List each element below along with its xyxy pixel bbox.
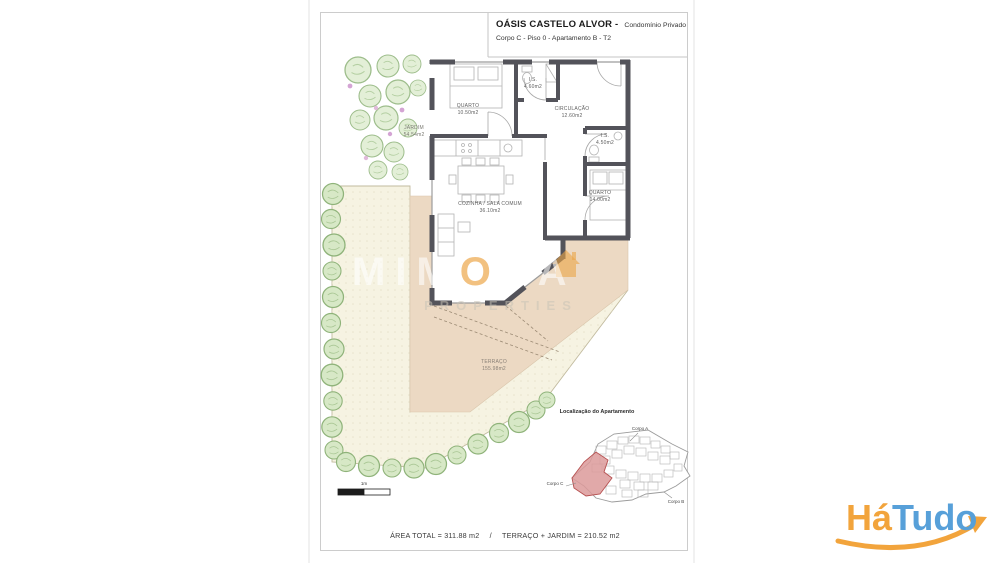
room-label-jardim: JARDIM 54.54m2: [392, 125, 436, 138]
watermark-subline: PROPERTIES: [416, 298, 586, 313]
location-minimap: [566, 430, 690, 502]
area-separator: /: [486, 531, 496, 540]
minimap-label-corpo-b: Corpo B: [656, 499, 696, 504]
apartment-subtitle: Corpo C - Piso 0 - Apartamento B - T2: [496, 35, 686, 42]
project-title: OÁSIS CASTELO ALVOR -: [496, 19, 618, 30]
minimap-title: Localização do Apartamento: [537, 409, 657, 415]
scale-bar: [338, 489, 390, 495]
floorplan-sheet: OÁSIS CASTELO ALVOR - Condomínio Privado…: [0, 0, 1001, 563]
room-label-is1: I.S. 4.60m2: [516, 77, 550, 90]
room-label-is2: I.S. 4.50m2: [588, 133, 622, 146]
terrace-garden-text: TERRAÇO + JARDIM = 210.52 m2: [498, 531, 624, 540]
minimap-label-corpo-c: Corpo C: [540, 481, 570, 486]
area-total-text: ÁREA TOTAL = 311.88 m2: [386, 531, 483, 540]
room-label-circulacao: CIRCULAÇÃO 12.60m2: [548, 106, 596, 119]
project-title-suffix: Condomínio Privado: [624, 22, 686, 29]
scale-bar-label: 1m: [338, 481, 390, 486]
agency-logo: HáTudo: [846, 497, 977, 539]
area-summary: ÁREA TOTAL = 311.88 m2 / TERRAÇO + JARDI…: [322, 531, 688, 540]
room-label-sala: COZINHA / SALA COMUM 36.10m2: [448, 201, 532, 214]
room-label-quarto2: QUARTO 14.00m2: [580, 190, 620, 203]
watermark-text: MIMOSA: [352, 250, 576, 295]
shrub-cluster: [345, 55, 426, 180]
room-label-terraco: TERRAÇO 155.98m2: [470, 359, 518, 372]
minimap-label-corpo-a: Corpo A: [620, 426, 660, 431]
room-label-quarto1: QUARTO 10.50m2: [440, 103, 496, 116]
title-block: OÁSIS CASTELO ALVOR - Condomínio Privado…: [496, 19, 686, 42]
